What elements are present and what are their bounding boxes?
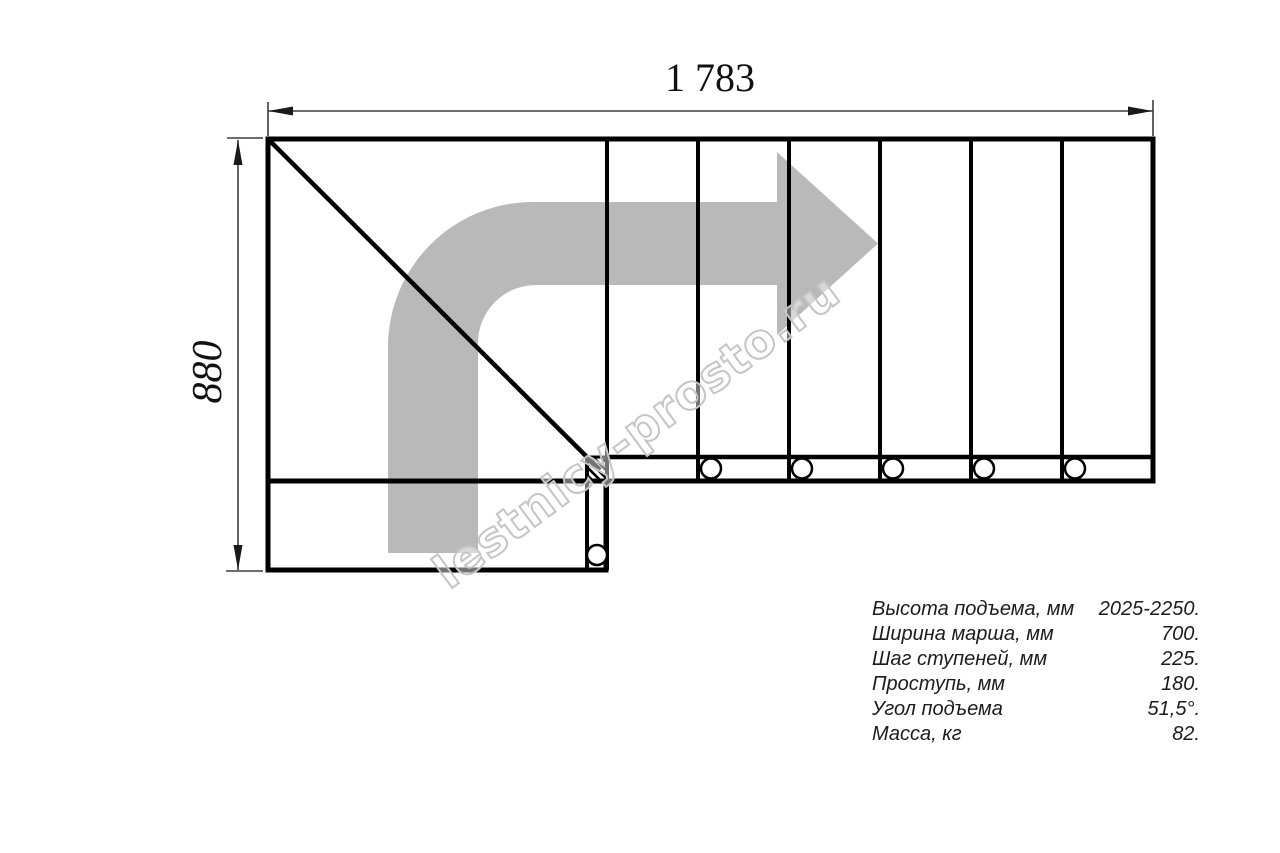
dimension-arrow-right [1128, 107, 1153, 116]
spec-row: Угол подъема 51,5°. [872, 697, 1200, 722]
spec-row: Проступь, мм 180. [872, 672, 1200, 697]
spec-value: 180. [1161, 672, 1200, 697]
direction-arrow [388, 152, 878, 553]
staircase-drawing-page: 1 783 880 lestnicy-prosto.ru Высота подъ… [0, 0, 1280, 853]
spec-label: Ширина марша, мм [872, 622, 1054, 647]
mount-circle [883, 459, 903, 479]
mount-circle [792, 459, 812, 479]
spec-value: 2025-2250. [1099, 597, 1200, 622]
mount-circle [974, 459, 994, 479]
spec-row: Ширина марша, мм 700. [872, 622, 1200, 647]
spec-label: Масса, кг [872, 722, 962, 747]
spec-label: Высота подъема, мм [872, 597, 1074, 622]
left-dimension [226, 138, 263, 571]
dimension-arrow-down [234, 545, 243, 570]
mount-circle [1065, 459, 1085, 479]
top-dimension [268, 100, 1153, 136]
spec-value: 51,5°. [1148, 697, 1200, 722]
watermark-text: lestnicy-prosto.ru [424, 264, 851, 600]
mount-circles [587, 459, 1085, 566]
top-dimension-label: 1 783 [665, 55, 755, 100]
spec-value: 225. [1161, 647, 1200, 672]
spec-label: Шаг ступеней, мм [872, 647, 1047, 672]
left-dimension-label: 880 [185, 341, 231, 404]
mount-circle [701, 459, 721, 479]
spec-value: 700. [1161, 622, 1200, 647]
spec-value: 82. [1172, 722, 1200, 747]
spec-label: Угол подъема [872, 697, 1003, 722]
spec-row: Шаг ступеней, мм 225. [872, 647, 1200, 672]
mount-circle [587, 545, 607, 565]
dimension-arrow-left [268, 107, 293, 116]
spec-row: Масса, кг 82. [872, 722, 1200, 747]
specs-table: Высота подъема, мм 2025-2250. Ширина мар… [872, 597, 1200, 747]
spec-row: Высота подъема, мм 2025-2250. [872, 597, 1200, 622]
spec-label: Проступь, мм [872, 672, 1005, 697]
dimension-arrow-up [234, 140, 243, 165]
